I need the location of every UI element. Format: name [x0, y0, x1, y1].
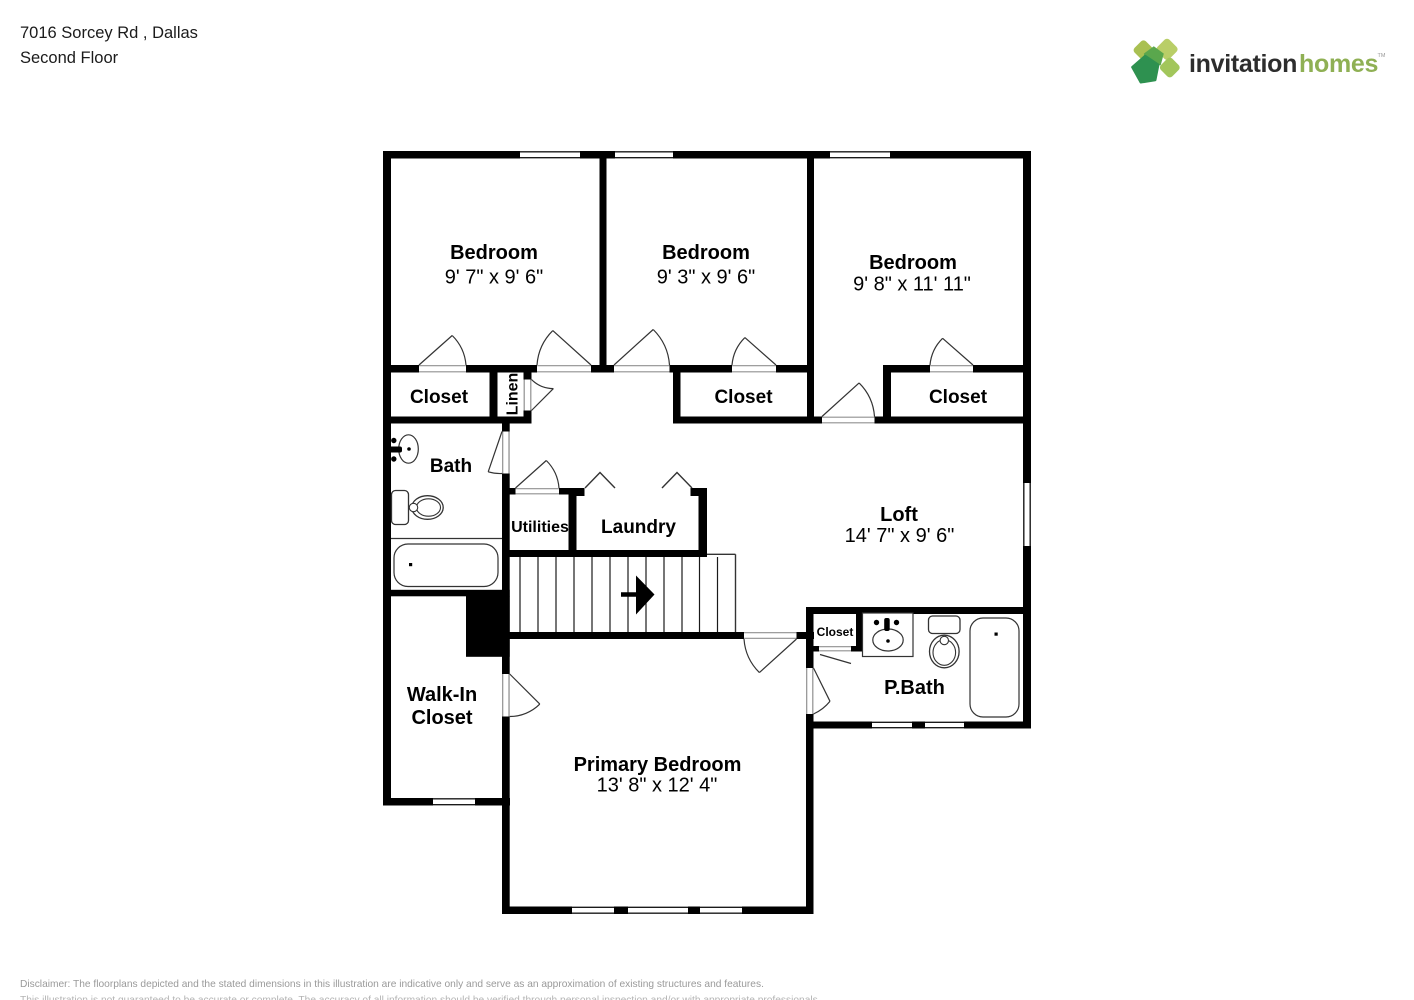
- svg-text:Closet: Closet: [817, 625, 854, 639]
- svg-text:Second Floor: Second Floor: [20, 49, 119, 67]
- svg-text:Closet: Closet: [714, 387, 773, 408]
- svg-text:Closet: Closet: [410, 387, 469, 408]
- svg-text:Walk-In: Walk-In: [407, 684, 477, 706]
- svg-text:Loft: Loft: [880, 504, 918, 526]
- svg-text:Utilities: Utilities: [511, 519, 569, 536]
- svg-text:Linen: Linen: [505, 373, 522, 416]
- svg-text:P.Bath: P.Bath: [884, 677, 945, 699]
- svg-text:14' 7" x 9' 6": 14' 7" x 9' 6": [845, 525, 955, 547]
- svg-text:9' 7" x 9' 6": 9' 7" x 9' 6": [445, 267, 544, 289]
- svg-text:homes: homes: [1299, 50, 1378, 78]
- svg-text:9' 3" x 9' 6": 9' 3" x 9' 6": [657, 267, 756, 289]
- svg-text:Bedroom: Bedroom: [450, 242, 538, 264]
- svg-text:Closet: Closet: [929, 387, 988, 408]
- svg-text:Bath: Bath: [430, 456, 472, 477]
- svg-text:Bedroom: Bedroom: [869, 252, 957, 274]
- svg-text:Laundry: Laundry: [601, 517, 676, 538]
- svg-text:7016 Sorcey Rd , Dallas: 7016 Sorcey Rd , Dallas: [20, 24, 198, 42]
- svg-text:9' 8" x 11' 11": 9' 8" x 11' 11": [853, 274, 971, 296]
- svg-text:13' 8" x 12' 4": 13' 8" x 12' 4": [597, 775, 718, 797]
- svg-text:invitation: invitation: [1189, 50, 1297, 78]
- svg-text:TM: TM: [1378, 53, 1386, 59]
- svg-text:Bedroom: Bedroom: [662, 242, 750, 264]
- svg-text:Primary Bedroom: Primary Bedroom: [574, 754, 742, 776]
- svg-text:Disclaimer: The floorplans dep: Disclaimer: The floorplans depicted and …: [20, 979, 764, 990]
- svg-text:Closet: Closet: [411, 707, 472, 729]
- svg-text:This illustration is not guara: This illustration is not guaranteed to b…: [20, 995, 821, 1000]
